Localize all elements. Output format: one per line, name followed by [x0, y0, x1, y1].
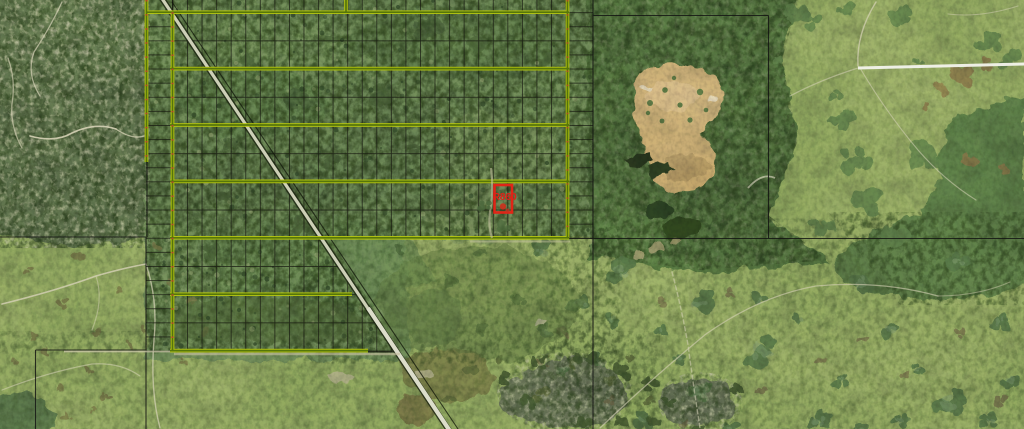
svg-text:R860: R860 — [493, 191, 517, 203]
